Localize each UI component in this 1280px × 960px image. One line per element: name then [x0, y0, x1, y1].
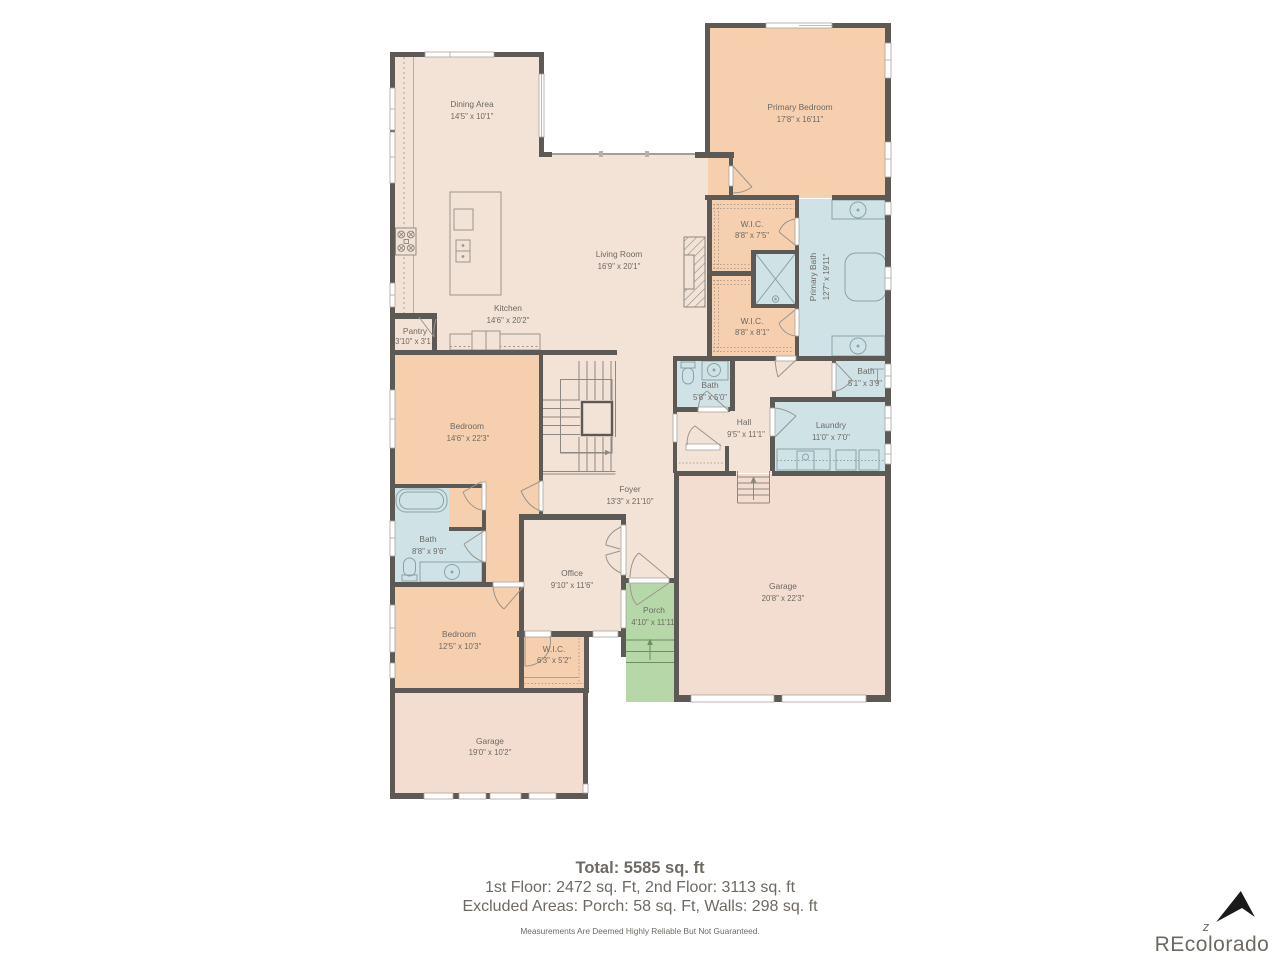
- svg-text:14'6" x 20'2": 14'6" x 20'2": [487, 316, 530, 325]
- svg-text:Total: 5585 sq. ft: Total: 5585 sq. ft: [576, 859, 705, 877]
- svg-text:19'0" x 10'2": 19'0" x 10'2": [469, 748, 512, 757]
- svg-text:W.I.C.: W.I.C.: [543, 644, 566, 654]
- svg-text:8'8" x 9'6": 8'8" x 9'6": [412, 547, 446, 556]
- svg-text:Living Room: Living Room: [596, 249, 643, 259]
- svg-text:REcolorado: REcolorado: [1155, 933, 1270, 956]
- svg-text:Foyer: Foyer: [619, 484, 641, 494]
- svg-text:20'8" x 22'3": 20'8" x 22'3": [762, 594, 805, 603]
- svg-text:Excluded Areas: Porch: 58 sq.: Excluded Areas: Porch: 58 sq. Ft, Walls:…: [462, 898, 818, 915]
- svg-text:Garage: Garage: [769, 581, 797, 591]
- svg-text:Bath: Bath: [857, 366, 875, 376]
- svg-text:6'3" x 5'2": 6'3" x 5'2": [537, 656, 571, 665]
- svg-text:12'5" x 10'3": 12'5" x 10'3": [439, 642, 482, 651]
- svg-text:Bath: Bath: [701, 380, 719, 390]
- svg-text:Garage: Garage: [476, 736, 504, 746]
- svg-text:8'8" x 8'1": 8'8" x 8'1": [735, 328, 769, 337]
- svg-text:17'8" x 16'11": 17'8" x 16'11": [777, 115, 824, 124]
- svg-text:Bath: Bath: [419, 534, 437, 544]
- svg-text:Dining Area: Dining Area: [450, 99, 494, 109]
- svg-text:5'1" x 3'9": 5'1" x 3'9": [848, 379, 882, 388]
- svg-text:3'10" x 3'1: 3'10" x 3'1: [395, 337, 431, 346]
- svg-text:Primary Bedroom: Primary Bedroom: [767, 102, 832, 112]
- svg-text:Pantry: Pantry: [403, 326, 428, 336]
- svg-text:14'6" x 22'3": 14'6" x 22'3": [447, 434, 490, 443]
- svg-text:Kitchen: Kitchen: [494, 303, 522, 313]
- svg-text:14'5" x 10'1": 14'5" x 10'1": [451, 112, 494, 121]
- svg-text:5'8" x 5'0": 5'8" x 5'0": [693, 393, 727, 402]
- svg-text:9'10" x 11'6": 9'10" x 11'6": [551, 581, 593, 590]
- svg-text:Office: Office: [561, 568, 583, 578]
- svg-text:W.I.C.: W.I.C.: [741, 219, 764, 229]
- svg-text:4'10" x 11'11: 4'10" x 11'11: [631, 618, 674, 627]
- svg-text:11'0" x 7'0": 11'0" x 7'0": [812, 433, 850, 442]
- svg-text:16'9" x 20'1": 16'9" x 20'1": [598, 262, 641, 271]
- svg-text:Laundry: Laundry: [816, 420, 847, 430]
- svg-text:z: z: [1202, 919, 1210, 934]
- svg-text:13'3" x 21'10": 13'3" x 21'10": [606, 497, 653, 506]
- svg-text:12'7" x 19'11": 12'7" x 19'11": [822, 254, 831, 301]
- svg-text:9'5" x 11'1": 9'5" x 11'1": [727, 430, 765, 439]
- svg-text:Primary Bath: Primary Bath: [808, 252, 818, 301]
- svg-text:Porch: Porch: [643, 605, 665, 615]
- svg-text:W.I.C.: W.I.C.: [741, 316, 764, 326]
- svg-text:8'8" x 7'5": 8'8" x 7'5": [735, 231, 769, 240]
- svg-text:Bedroom: Bedroom: [450, 421, 484, 431]
- svg-text:1st Floor: 2472 sq. Ft, 2nd Fl: 1st Floor: 2472 sq. Ft, 2nd Floor: 3113 …: [485, 879, 796, 896]
- svg-text:Measurements Are Deemed Highly: Measurements Are Deemed Highly Reliable …: [520, 926, 759, 936]
- svg-text:Bedroom: Bedroom: [442, 629, 476, 639]
- svg-text:Hall: Hall: [737, 417, 752, 427]
